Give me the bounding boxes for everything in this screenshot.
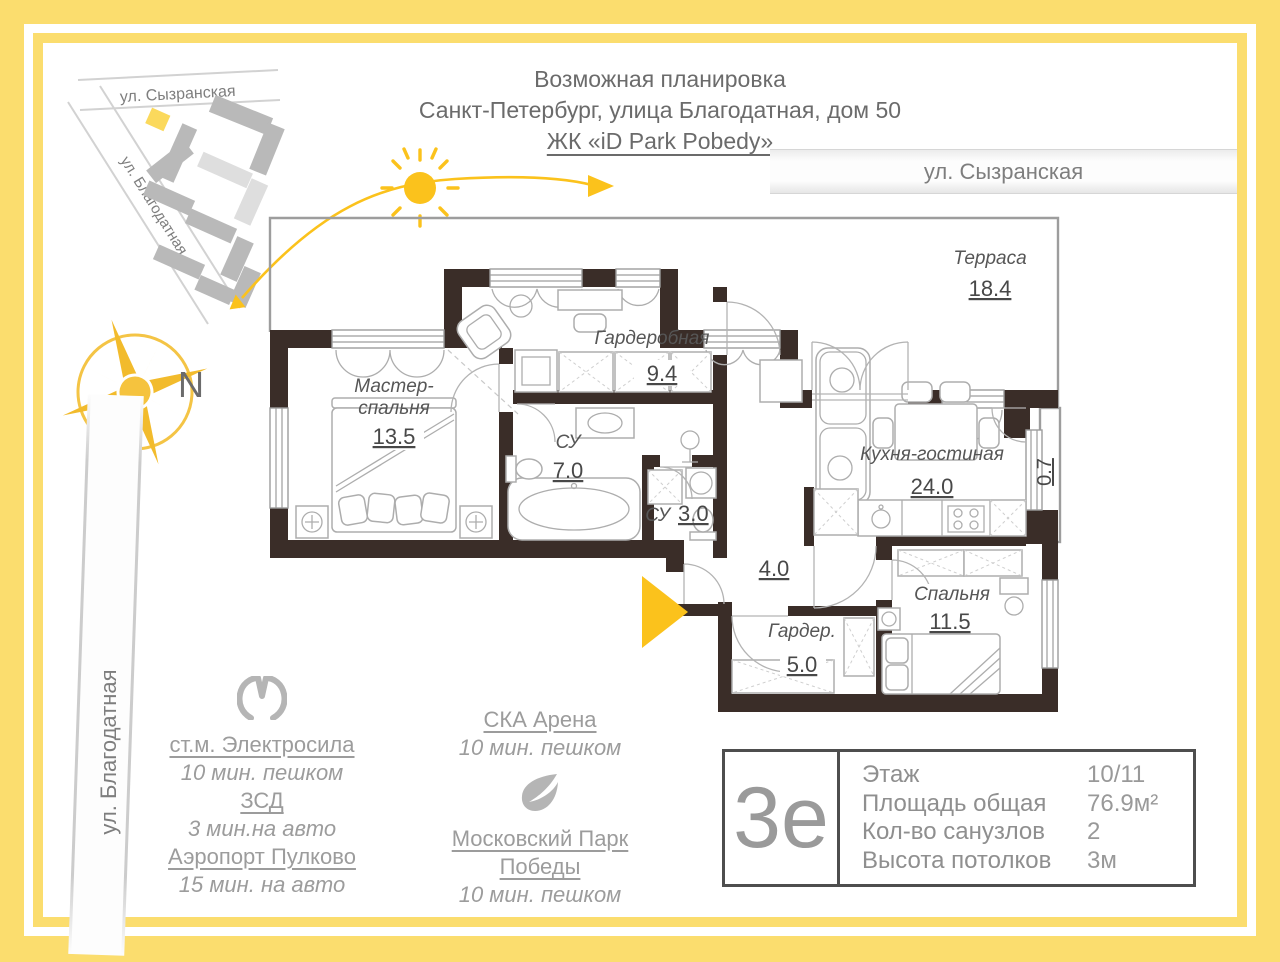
zsd-name: ЗСД <box>112 787 412 815</box>
park-time: 10 мин. пешком <box>412 881 668 909</box>
kitchen-living-area: 24.0 <box>911 474 954 499</box>
title-line-2: Санкт-Петербург, улица Благодатная, дом … <box>300 95 1020 126</box>
building-highlight-marker <box>145 108 170 132</box>
arena-time: 10 мин. пешком <box>412 734 668 762</box>
wardrobe-area: 9.4 <box>647 361 678 386</box>
metro-time: 10 мин. пешком <box>112 759 412 787</box>
info-row-ceiling: Высота потолков 3м <box>862 847 1173 875</box>
airport-time: 15 мин. на авто <box>112 871 412 899</box>
info-label: Этаж <box>862 761 919 789</box>
apartment-type-logo: 3е <box>725 752 840 884</box>
kitchen-living-label: Кухня-гостиная <box>860 444 1004 465</box>
hallway-area: 4.0 <box>759 556 790 581</box>
bathroom-small-label: СУ <box>645 505 672 526</box>
bathroom-large-area: 7.0 <box>553 458 584 483</box>
arena-name: СКА Арена <box>412 706 668 734</box>
park-name-2: Победы <box>412 853 668 881</box>
info-rows: Этаж 10/11 Площадь общая 76.9м² Кол-во с… <box>840 752 1193 884</box>
floor-plan: Терраса 18.4 Гардеробная 9.4 Мастер- спа… <box>262 206 1064 718</box>
entrance-arrow-icon <box>642 576 688 648</box>
terrace-area: 18.4 <box>969 276 1012 301</box>
kitchen-living-furniture <box>760 348 1026 536</box>
leaf-icon <box>517 772 563 814</box>
bedroom-area: 11.5 <box>929 609 970 634</box>
bathroom-large-label: СУ <box>556 432 583 453</box>
wardrobe-small-area: 5.0 <box>787 652 818 677</box>
wardrobe-label: Гардеробная <box>595 328 710 349</box>
metro-icon <box>237 676 287 720</box>
zsd-time: 3 мин.на авто <box>112 815 412 843</box>
compass-north-label: N <box>178 364 204 406</box>
info-row-bathrooms: Кол-во санузлов 2 <box>862 818 1173 846</box>
apartment-info-box: 3е Этаж 10/11 Площадь общая 76.9м² Кол-в… <box>722 749 1196 887</box>
road-syzranskaya: ул. Сызранская <box>78 70 280 110</box>
master-bedroom-furniture <box>296 398 492 538</box>
airport-name: Аэропорт Пулково <box>112 843 412 871</box>
terrace-label: Терраса <box>953 248 1026 269</box>
info-value: 10/11 <box>1087 761 1173 789</box>
master-bedroom-label-1: Мастер- <box>354 376 433 397</box>
wardrobe-small-label: Гардер. <box>768 621 836 642</box>
info-value: 76.9м² <box>1087 790 1173 818</box>
info-label: Высота потолков <box>862 847 1051 875</box>
master-bedroom-label-2: спальня <box>358 398 430 419</box>
master-bedroom-area: 13.5 <box>373 424 416 449</box>
bathroom-small-area: 3.0 <box>678 501 709 526</box>
title-line-1: Возможная планировка <box>300 64 1020 95</box>
transport-block-middle: СКА Арена 10 мин. пешком Московский Парк… <box>412 706 668 909</box>
info-value: 3м <box>1087 847 1173 875</box>
info-label: Площадь общая <box>862 790 1046 818</box>
bedroom-label: Спальня <box>914 584 990 605</box>
street-band-label: ул. Сызранская <box>924 159 1083 185</box>
sun-arrow-east <box>588 175 614 197</box>
metro-name: ст.м. Электросила <box>112 731 412 759</box>
info-row-area: Площадь общая 76.9м² <box>862 790 1173 818</box>
balcony-area: 0.7 <box>1034 458 1056 486</box>
info-row-floor: Этаж 10/11 <box>862 761 1173 789</box>
street-band-syzranskaya: ул. Сызранская <box>770 149 1237 194</box>
info-value: 2 <box>1087 818 1173 846</box>
info-label: Кол-во санузлов <box>862 818 1045 846</box>
transport-block-left: ст.м. Электросила 10 мин. пешком ЗСД 3 м… <box>112 676 412 899</box>
park-name-1: Московский Парк <box>412 825 668 853</box>
